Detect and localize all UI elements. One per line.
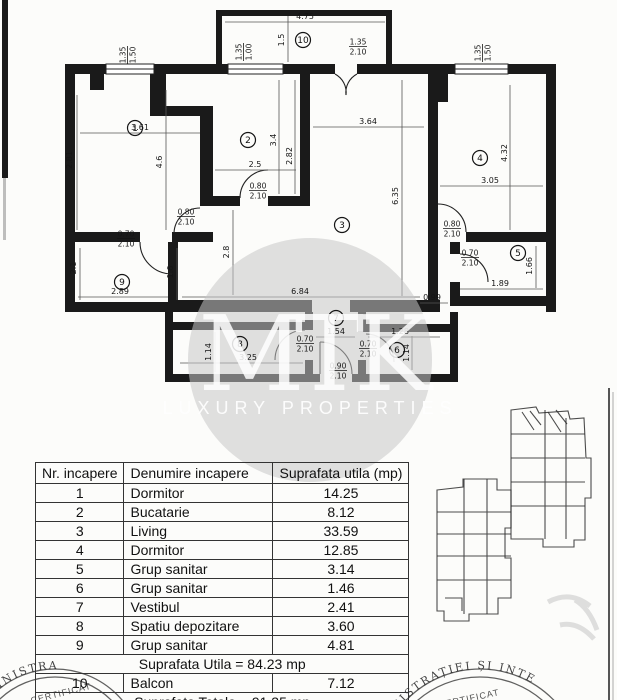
svg-text:1.35: 1.35	[235, 43, 244, 60]
dimension-label: 4.6	[155, 156, 164, 169]
table-row: 5Grup sanitar3.14	[36, 560, 409, 579]
table-cell: 7	[36, 598, 124, 617]
svg-text:2.10: 2.10	[462, 259, 479, 268]
dimension-label: 2.81	[65, 151, 74, 169]
room-marker: 2	[241, 133, 256, 148]
watermark-logo: MTK	[198, 293, 434, 415]
table-cell: Grup sanitar	[124, 560, 273, 579]
watermark-subtitle: LUXURY PROPERTIES	[162, 398, 457, 418]
table-cell: 1	[36, 484, 124, 503]
svg-text:1.35: 1.35	[474, 44, 483, 61]
table-row: Nr. incapereDenumire incapereSuprafata u…	[36, 463, 409, 484]
dimension-label: 3.05	[481, 176, 499, 185]
dimension-label: 4.32	[500, 144, 509, 162]
table-row: Suprafata Totala = 91.35 mp	[36, 693, 409, 700]
table-cell: 9	[36, 636, 124, 655]
dimension-label: 1.6	[166, 266, 175, 279]
room-marker: 4	[473, 151, 488, 166]
size-label: 0.802.10	[177, 208, 195, 227]
table-cell: 14.25	[273, 484, 409, 503]
room-marker: 10	[296, 33, 311, 48]
dimension-label: 3.4	[269, 134, 278, 147]
dimension-label: 1.89	[491, 279, 509, 288]
svg-text:9: 9	[119, 278, 125, 288]
svg-text:2.10: 2.10	[250, 192, 267, 201]
table-cell: 7.12	[273, 674, 409, 693]
svg-text:0.70: 0.70	[118, 230, 135, 239]
svg-text:1.35: 1.35	[119, 46, 128, 63]
svg-text:3: 3	[339, 221, 345, 231]
table-cell: Suprafata Totala = 91.35 mp	[36, 693, 409, 700]
table-cell: Nr. incapere	[36, 463, 124, 484]
table-cell: Spatiu depozitare	[124, 617, 273, 636]
table-cell: 4	[36, 541, 124, 560]
table-cell: Suprafata utila (mp)	[273, 463, 409, 484]
svg-text:2.10: 2.10	[350, 48, 367, 57]
table-cell: Dormitor	[124, 541, 273, 560]
table-cell: Denumire incapere	[124, 463, 273, 484]
table-cell: 2.41	[273, 598, 409, 617]
size-label: 1.351.50	[119, 46, 138, 64]
scanned-floor-plan-page: 4.751.53.614.62.812.53.42.823.646.353.05…	[0, 0, 617, 700]
dimension-label: 6.35	[391, 187, 400, 205]
svg-text:0.80: 0.80	[444, 220, 461, 229]
dimension-label: 2.8	[222, 246, 231, 259]
svg-text:2: 2	[245, 136, 251, 146]
svg-text:2.10: 2.10	[118, 240, 135, 249]
size-label: 1.351.00	[235, 43, 254, 61]
room-marker: 3	[335, 218, 350, 233]
table-cell: 3	[36, 522, 124, 541]
table-row: 10Balcon7.12	[36, 674, 409, 693]
table-row: 6Grup sanitar1.46	[36, 579, 409, 598]
table-row: 7Vestibul2.41	[36, 598, 409, 617]
svg-text:2.10: 2.10	[444, 230, 461, 239]
table-cell: Bucatarie	[124, 503, 273, 522]
table-row: 1Dormitor14.25	[36, 484, 409, 503]
size-label: 1.352.10	[349, 38, 367, 57]
table-cell: Vestibul	[124, 598, 273, 617]
table-cell: Suprafata Utila = 84.23 mp	[36, 655, 409, 674]
table-cell: 1.46	[273, 579, 409, 598]
room-marker: 9	[115, 275, 130, 290]
svg-text:0.80: 0.80	[250, 182, 267, 191]
size-label: 0.802.10	[249, 182, 267, 201]
site-plan-sketch	[437, 407, 591, 621]
table-cell: 8	[36, 617, 124, 636]
dimension-label: 2.5	[249, 160, 262, 169]
table-cell: Balcon	[124, 674, 273, 693]
ink-smudge	[548, 597, 597, 639]
svg-text:10: 10	[297, 36, 309, 46]
table-cell: Grup sanitar	[124, 579, 273, 598]
dimension-label: 2.1	[69, 262, 78, 275]
dimension-label: 0.99	[423, 293, 441, 302]
table-row: 2Bucatarie8.12	[36, 503, 409, 522]
size-label: 1.351.50	[474, 44, 493, 62]
table-cell: 33.59	[273, 522, 409, 541]
table-cell: Dormitor	[124, 484, 273, 503]
table-cell: 4.81	[273, 636, 409, 655]
table-cell: 2	[36, 503, 124, 522]
svg-text:1.50: 1.50	[129, 46, 138, 63]
dimension-label: 4.75	[296, 12, 314, 21]
table-cell: 3.14	[273, 560, 409, 579]
scan-edge-left-fade	[3, 178, 6, 240]
table-cell: 3.60	[273, 617, 409, 636]
svg-text:1.35: 1.35	[350, 38, 367, 47]
scan-edge-left	[2, 0, 8, 178]
table-row: Suprafata Utila = 84.23 mp	[36, 655, 409, 674]
table-cell: 5	[36, 560, 124, 579]
svg-text:5: 5	[515, 249, 521, 259]
table-cell: 10	[36, 674, 124, 693]
table-cell: 12.85	[273, 541, 409, 560]
size-label: 0.702.10	[461, 249, 479, 268]
svg-text:1.00: 1.00	[245, 43, 254, 60]
area-table: Nr. incapereDenumire incapereSuprafata u…	[35, 462, 409, 700]
svg-text:1: 1	[132, 124, 138, 134]
dimension-label: 2.82	[285, 147, 294, 165]
svg-text:2.10: 2.10	[178, 218, 195, 227]
table-cell: 6	[36, 579, 124, 598]
dimension-label: 1.5	[277, 34, 286, 47]
table-row: 4Dormitor12.85	[36, 541, 409, 560]
size-label: 0.702.10	[117, 230, 135, 249]
watermark: MTK LUXURY PROPERTIES	[162, 293, 457, 418]
table-cell: Grup sanitar	[124, 636, 273, 655]
stamp-right-label: CERTIFICAT	[437, 687, 500, 700]
room-marker: 5	[511, 246, 526, 261]
dimension-label: 3.64	[359, 117, 377, 126]
table-cell: Living	[124, 522, 273, 541]
table-row: 8Spatiu depozitare3.60	[36, 617, 409, 636]
size-label: 0.802.10	[443, 220, 461, 239]
table-row: 3Living33.59	[36, 522, 409, 541]
svg-text:4: 4	[477, 154, 483, 164]
dimension-label: 1.66	[525, 257, 534, 275]
svg-text:0.80: 0.80	[178, 208, 195, 217]
svg-text:0.70: 0.70	[462, 249, 479, 258]
table-row: 9Grup sanitar4.81	[36, 636, 409, 655]
svg-text:1.50: 1.50	[484, 44, 493, 61]
table-cell: 8.12	[273, 503, 409, 522]
